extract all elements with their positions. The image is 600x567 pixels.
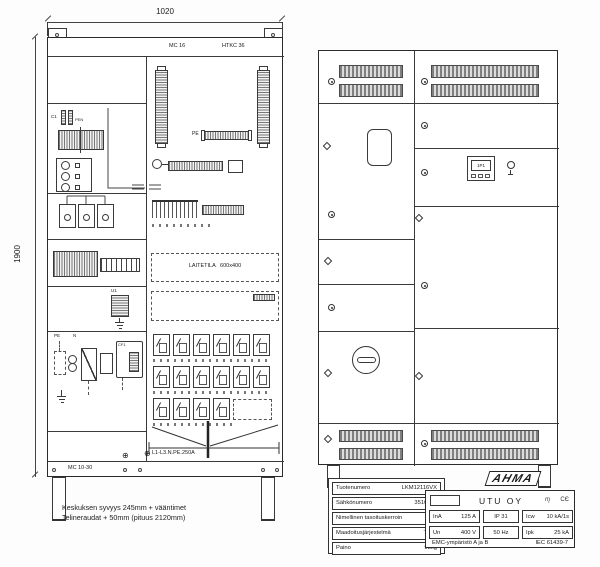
vent-grille [339,448,403,460]
door-latch-icon [324,257,332,265]
display-buttons [471,174,490,178]
cell-value: 125 A [461,514,476,520]
rating-plate: UTU OY ɱ CЄ InA 125 A IP 31 Icw 10 kA/1s… [425,490,575,548]
row-label: Nimellinen tasoituskerroin [336,515,402,521]
row-label: Maadoitusjärjestelmä [336,530,391,536]
dimension-width-label: 1020 [140,8,190,16]
rating-cell: InA 125 A [429,510,480,523]
door-line [414,148,559,149]
note-line-2: Telineraudat + 50mm (pituus 2120mm) [62,514,185,521]
door-lock-icon [421,169,428,176]
vent-grille [431,430,539,442]
rating-cell: 50 Hz [483,526,519,539]
cell-label: Ipk [526,530,534,536]
door-lock-icon [328,78,335,85]
cell-label: Icw [526,514,535,520]
dimension-height-line [35,37,36,477]
indicator-lamp-base [508,174,513,175]
cell-label: IP 31 [494,514,507,520]
row-label: Paino [336,545,351,551]
row-label: Tuotenumero [336,485,370,491]
door-latch-icon [323,142,331,150]
door-line [414,423,559,424]
door-latch-icon [415,214,423,222]
dimension-height-label: 1900 [14,236,22,272]
meter-window [367,129,392,166]
door-lock-icon [421,122,428,129]
certification-mark-icon: ɱ [545,497,550,503]
door-line [414,328,559,329]
vent-grille [339,84,403,97]
ce-mark-icon: CЄ [560,497,569,503]
vent-grille [431,65,539,78]
vent-grille [431,448,539,460]
cell-label: 50 Hz [493,530,508,536]
vent-grille [339,65,403,78]
door-line [414,206,559,207]
dimension-tick [45,15,51,21]
row-label: Sähkönumero [336,500,372,506]
door-line [319,331,414,332]
cell-value: 10 kA/1s [546,514,569,520]
dimension-tick [279,15,285,21]
rating-cell: Un 400 V [429,526,480,539]
brand-logo: AHMA [485,471,542,486]
door-latch-icon [324,369,332,377]
cell-value: 25 kA [554,530,569,536]
door-divider [414,51,415,466]
rear-view-cabinet: MC 16 HTKC 36 PE LAITETILA 600x400 [47,37,283,477]
cell-label: InA [433,514,442,520]
cell-label: Un [433,530,440,536]
door-line [319,423,414,424]
vent-grille [431,84,539,97]
cabinet-leg [538,465,551,488]
rating-cell: Ipk 25 kA [522,526,573,539]
cell-value: 400 V [461,530,476,536]
main-switch-lever [357,357,376,363]
cabinet-leg [261,477,275,521]
door-lock-icon [421,440,428,447]
front-view-cabinet: 1P1 [318,50,558,465]
brand-logo-text: AHMA [491,473,535,485]
technical-drawing-canvas: 1020 1900 MC 16 HTKC 36 PE [0,0,600,567]
display-device: 1P1 [467,156,495,181]
door-line [414,103,559,104]
dimension-width-line [47,22,283,23]
plate-footer-left: EMC-ympäristö A ja B [432,541,488,547]
door-lock-icon [421,78,428,85]
door-line [319,103,414,104]
note-line-1: Keskuksen syvyys 245mm + vääntimet [62,504,186,511]
indicator-lamp-icon [507,161,515,169]
company-name: UTU OY [466,497,536,506]
wiring-and-cable-entry [48,38,284,478]
vent-grille [339,430,403,442]
door-latch-icon [324,435,332,443]
rating-cell: IP 31 [483,510,519,523]
door-line [319,239,414,240]
serial-box [430,495,460,506]
door-latch-icon [415,372,423,380]
door-line [319,284,414,285]
plate-footer-right: IEC 61439-7 [535,541,568,547]
rating-cell: Icw 10 kA/1s [522,510,573,523]
door-lock-icon [328,211,335,218]
door-lock-icon [328,304,335,311]
display-screen: 1P1 [471,160,491,171]
door-lock-icon [421,282,428,289]
